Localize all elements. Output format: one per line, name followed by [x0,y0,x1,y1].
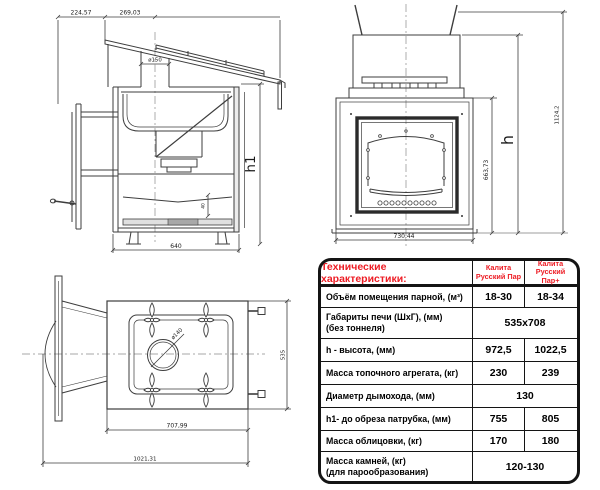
spec-col-header-russkiy-par: Калита Русский Пар [472,261,524,284]
table-row: Масса камней, (кг) (для парообразования)… [321,451,577,481]
plan-dim-535-label: 535 [281,350,287,360]
side-view-stove-outline [50,40,285,244]
side-view-drawing: 224,57 269,03 ø150 h1 640 40 [28,4,310,256]
row-value-merged: 130 [472,385,577,407]
side-view-labels: 224,57 269,03 ø150 h1 640 40 [71,10,260,251]
row-value-1: 18-30 [472,287,524,307]
row-sublabel: (для парообразования) [326,467,428,478]
table-row: h - высота, (мм) 972,5 1022,5 [321,338,577,361]
front-frame-screws [350,113,463,217]
row-value-2: 1022,5 [524,339,576,361]
row-value-2: 239 [524,362,576,384]
spec-table: Технические характеристики: Калита Русск… [318,258,580,484]
plan-view-drawing: ø140 535 707,99 1021,31 [0,263,310,488]
front-view-stove-outline [332,5,477,233]
side-dim-224-label: 224,57 [71,10,92,17]
table-row: Масса топочного агрегата, (кг) 230 239 [321,361,577,384]
row-value-2: 805 [524,408,576,430]
row-value-merged: 120-130 [472,452,577,481]
row-value-2: 18-34 [524,287,576,307]
side-dim-640-label: 640 [170,243,182,250]
table-row: Объём помещения парной, (м³) 18-30 18-34 [321,286,577,307]
row-value-2: 180 [524,431,576,451]
front-view-drawing: 663,73 h 1124,2 730,44 [330,0,600,255]
plan-dim-707-label: 707,99 [167,423,188,430]
table-row: Диаметр дымохода, (мм) 130 [321,384,577,407]
front-view-labels: 663,73 h 1124,2 730,44 [394,106,561,240]
spec-table-title: Технические характеристики: [321,261,472,284]
plan-dim-1021-label: 1021,31 [133,457,157,463]
row-value-merged: 535x708 [472,308,577,338]
side-dim-40-label: 40 [201,203,207,209]
row-sublabel: (без тоннеля) [326,323,385,334]
technical-drawing-sheet: 224,57 269,03 ø150 h1 640 40 [0,0,600,490]
row-label: Масса облицовки, (кг) [326,436,422,447]
front-dim-663-label: 663,73 [484,160,490,181]
plan-hole-diameter-label: ø140 [170,327,184,341]
table-row: Масса облицовки, (кг) 170 180 [321,430,577,451]
row-label: h1- до обреза патрубка, (мм) [326,414,451,425]
row-label: Масса топочного агрегата, (кг) [326,368,458,379]
row-value-1: 972,5 [472,339,524,361]
front-dim-730-label: 730,44 [394,233,415,240]
row-label: h - высота, (мм) [326,345,395,356]
row-label: Габариты печи (ШхГ), (мм) [326,312,442,323]
plan-view-labels: ø140 535 707,99 1021,31 [133,327,286,463]
row-value-1: 230 [472,362,524,384]
row-label: Масса камней, (кг) [326,456,406,467]
side-dim-269-label: 269,03 [120,10,141,17]
front-dim-1124-label: 1124,2 [555,106,561,125]
side-chimney-diameter-label: ø150 [148,58,162,64]
row-label: Диаметр дымохода, (мм) [326,391,435,402]
row-label: Объём помещения парной, (м³) [326,292,463,303]
front-dim-h-label: h [498,135,517,145]
row-value-1: 755 [472,408,524,430]
plan-view-stove-outline [45,276,265,421]
front-view-dimension-lines [334,10,568,244]
table-row: Габариты печи (ШхГ), (мм) (без тоннеля) … [321,307,577,338]
side-dim-h1-label: h1 [243,155,259,172]
spec-col-header-russkiy-par-plus: Калита Русский Пар+ [524,261,576,284]
row-value-1: 170 [472,431,524,451]
spec-table-header: Технические характеристики: Калита Русск… [321,261,577,286]
table-row: h1- до обреза патрубка, (мм) 755 805 [321,407,577,430]
